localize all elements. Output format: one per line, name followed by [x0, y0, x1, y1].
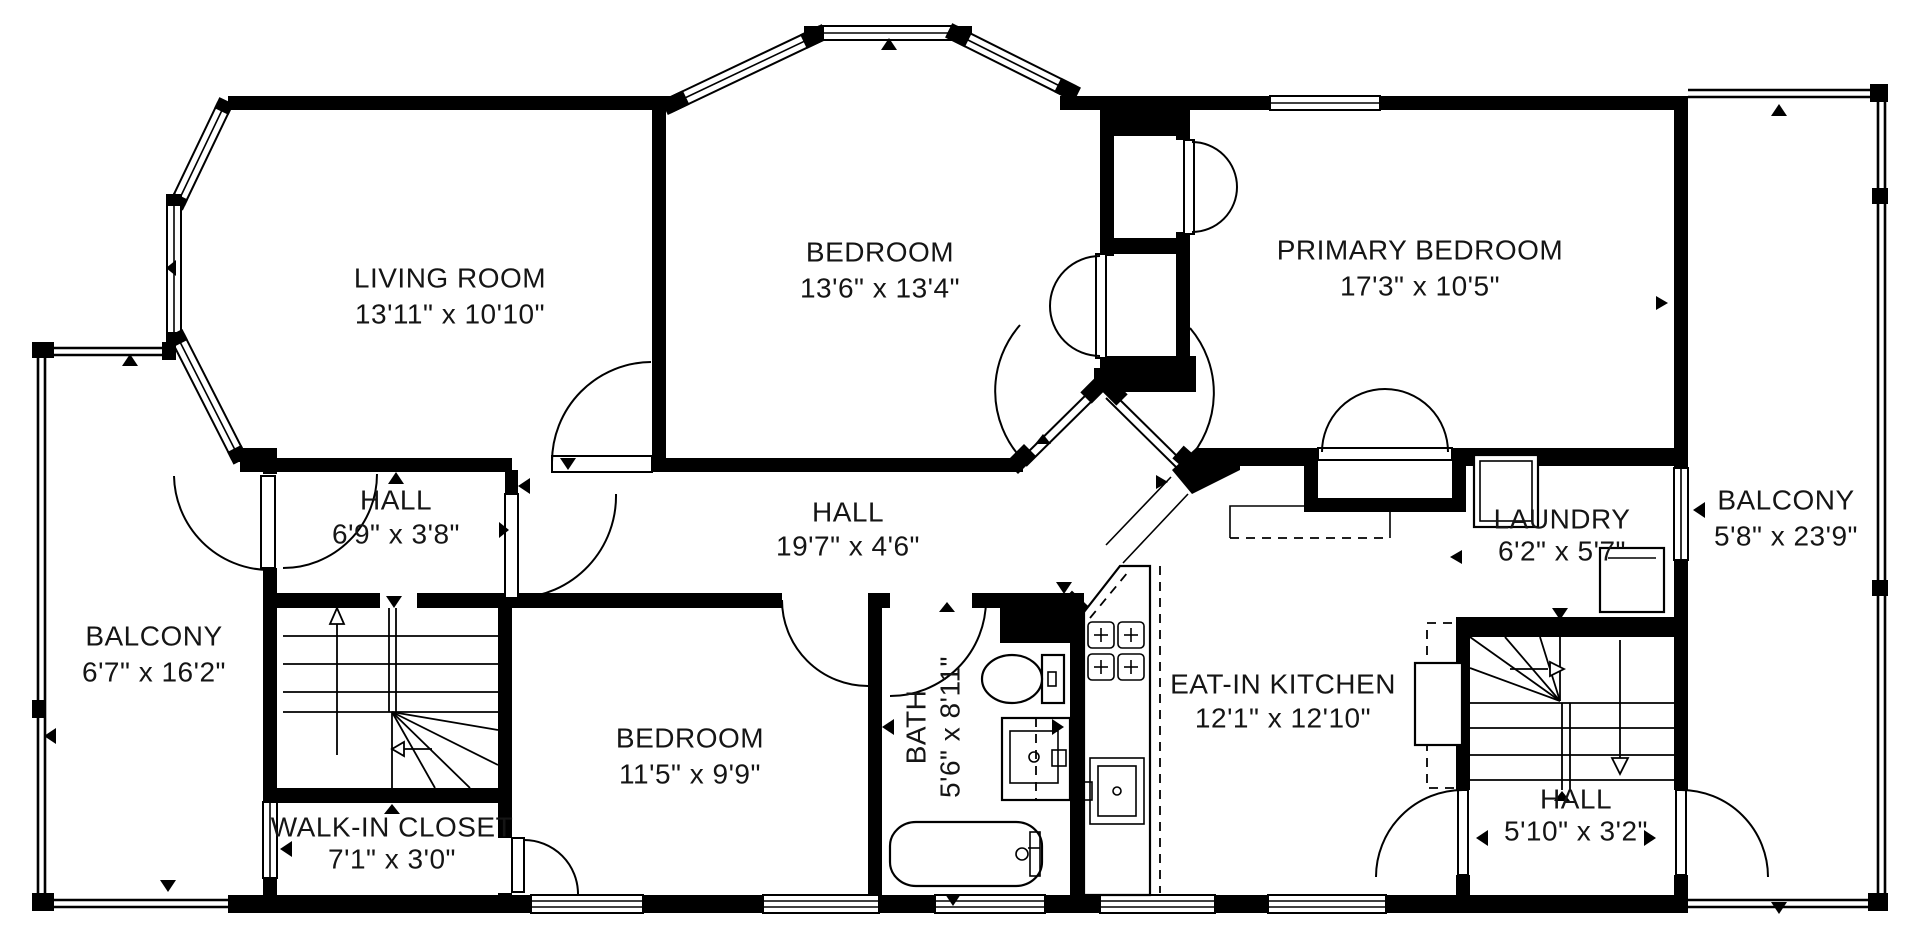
label-bath-name: BATH — [900, 690, 931, 765]
floor-plan: LIVING ROOM 13'11" x 10'10" BEDROOM 13'6… — [0, 0, 1920, 935]
label-living-room-name: LIVING ROOM — [354, 262, 546, 293]
window-bottom-1 — [531, 895, 643, 913]
label-hall-long-dims: 19'7" x 4'6" — [776, 530, 920, 561]
label-primary-bedroom-dims: 17'3" x 10'5" — [1340, 270, 1500, 301]
kitchen-counter — [1084, 566, 1150, 895]
label-walk-in-closet-dims: 7'1" x 3'0" — [328, 843, 456, 874]
label-hall-small-dims: 6'9" x 3'8" — [332, 518, 460, 549]
label-balcony-left-name: BALCONY — [85, 620, 222, 651]
label-bedroom-bottom-name: BEDROOM — [616, 722, 764, 753]
label-hall-bottom-name: HALL — [1540, 783, 1612, 814]
label-bedroom-bottom-dims: 11'5" x 9'9" — [619, 758, 761, 789]
label-hall-bottom-dims: 5'10" x 3'2" — [1504, 815, 1648, 846]
window-east-wall — [1674, 468, 1688, 560]
label-hall-long-name: HALL — [812, 496, 884, 527]
label-laundry-dims: 6'2" x 5'7" — [1498, 535, 1626, 566]
label-walk-in-closet-name: WALK-IN CLOSET — [271, 811, 513, 842]
vanity-sink — [1002, 718, 1070, 800]
label-bath-dims: 5'6" x 8'11" — [934, 656, 965, 798]
window-primary-top — [1270, 96, 1380, 110]
label-living-room-dims: 13'11" x 10'10" — [355, 298, 545, 329]
label-balcony-right-name: BALCONY — [1717, 484, 1854, 515]
label-bedroom-top-name: BEDROOM — [806, 236, 954, 267]
label-hall-small-name: HALL — [360, 484, 432, 515]
window-bottom-4 — [1100, 895, 1215, 913]
label-laundry-name: LAUNDRY — [1494, 503, 1631, 534]
toilet — [982, 655, 1064, 703]
label-eat-in-kitchen-dims: 12'1" x 12'10" — [1195, 702, 1371, 733]
floor-plan-page: LIVING ROOM 13'11" x 10'10" BEDROOM 13'6… — [0, 0, 1920, 935]
label-primary-bedroom-name: PRIMARY BEDROOM — [1277, 234, 1564, 265]
label-bedroom-top-dims: 13'6" x 13'4" — [800, 272, 960, 303]
window-bottom-2 — [763, 895, 879, 913]
bathtub — [890, 822, 1042, 886]
window-bottom-5 — [1268, 895, 1386, 913]
label-balcony-left-dims: 6'7" x 16'2" — [82, 656, 226, 687]
label-eat-in-kitchen-name: EAT-IN KITCHEN — [1170, 668, 1396, 699]
label-balcony-right-dims: 5'8" x 23'9" — [1714, 520, 1858, 551]
